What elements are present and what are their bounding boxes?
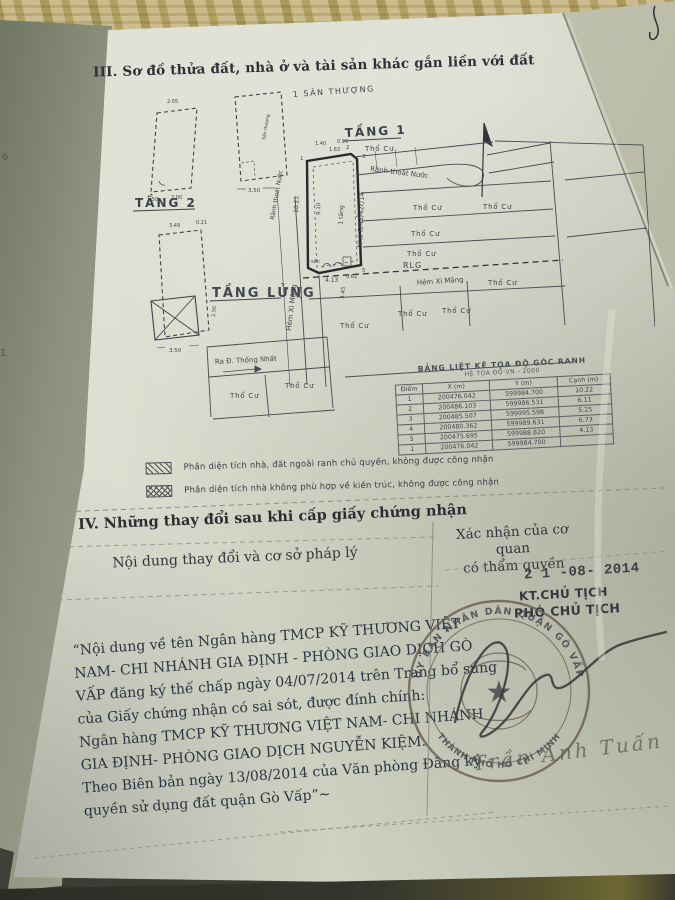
signature-stroke [455, 632, 666, 737]
paper-crease [598, 310, 612, 660]
page-fold-line [563, 13, 668, 286]
pen-mark [650, 6, 659, 39]
signature-and-marks [0, 0, 675, 900]
photo-scene: 6 1 III. Sơ đồ thửa đất, nhà ở và tài sả… [0, 0, 675, 900]
form-rule-lines [35, 488, 670, 858]
